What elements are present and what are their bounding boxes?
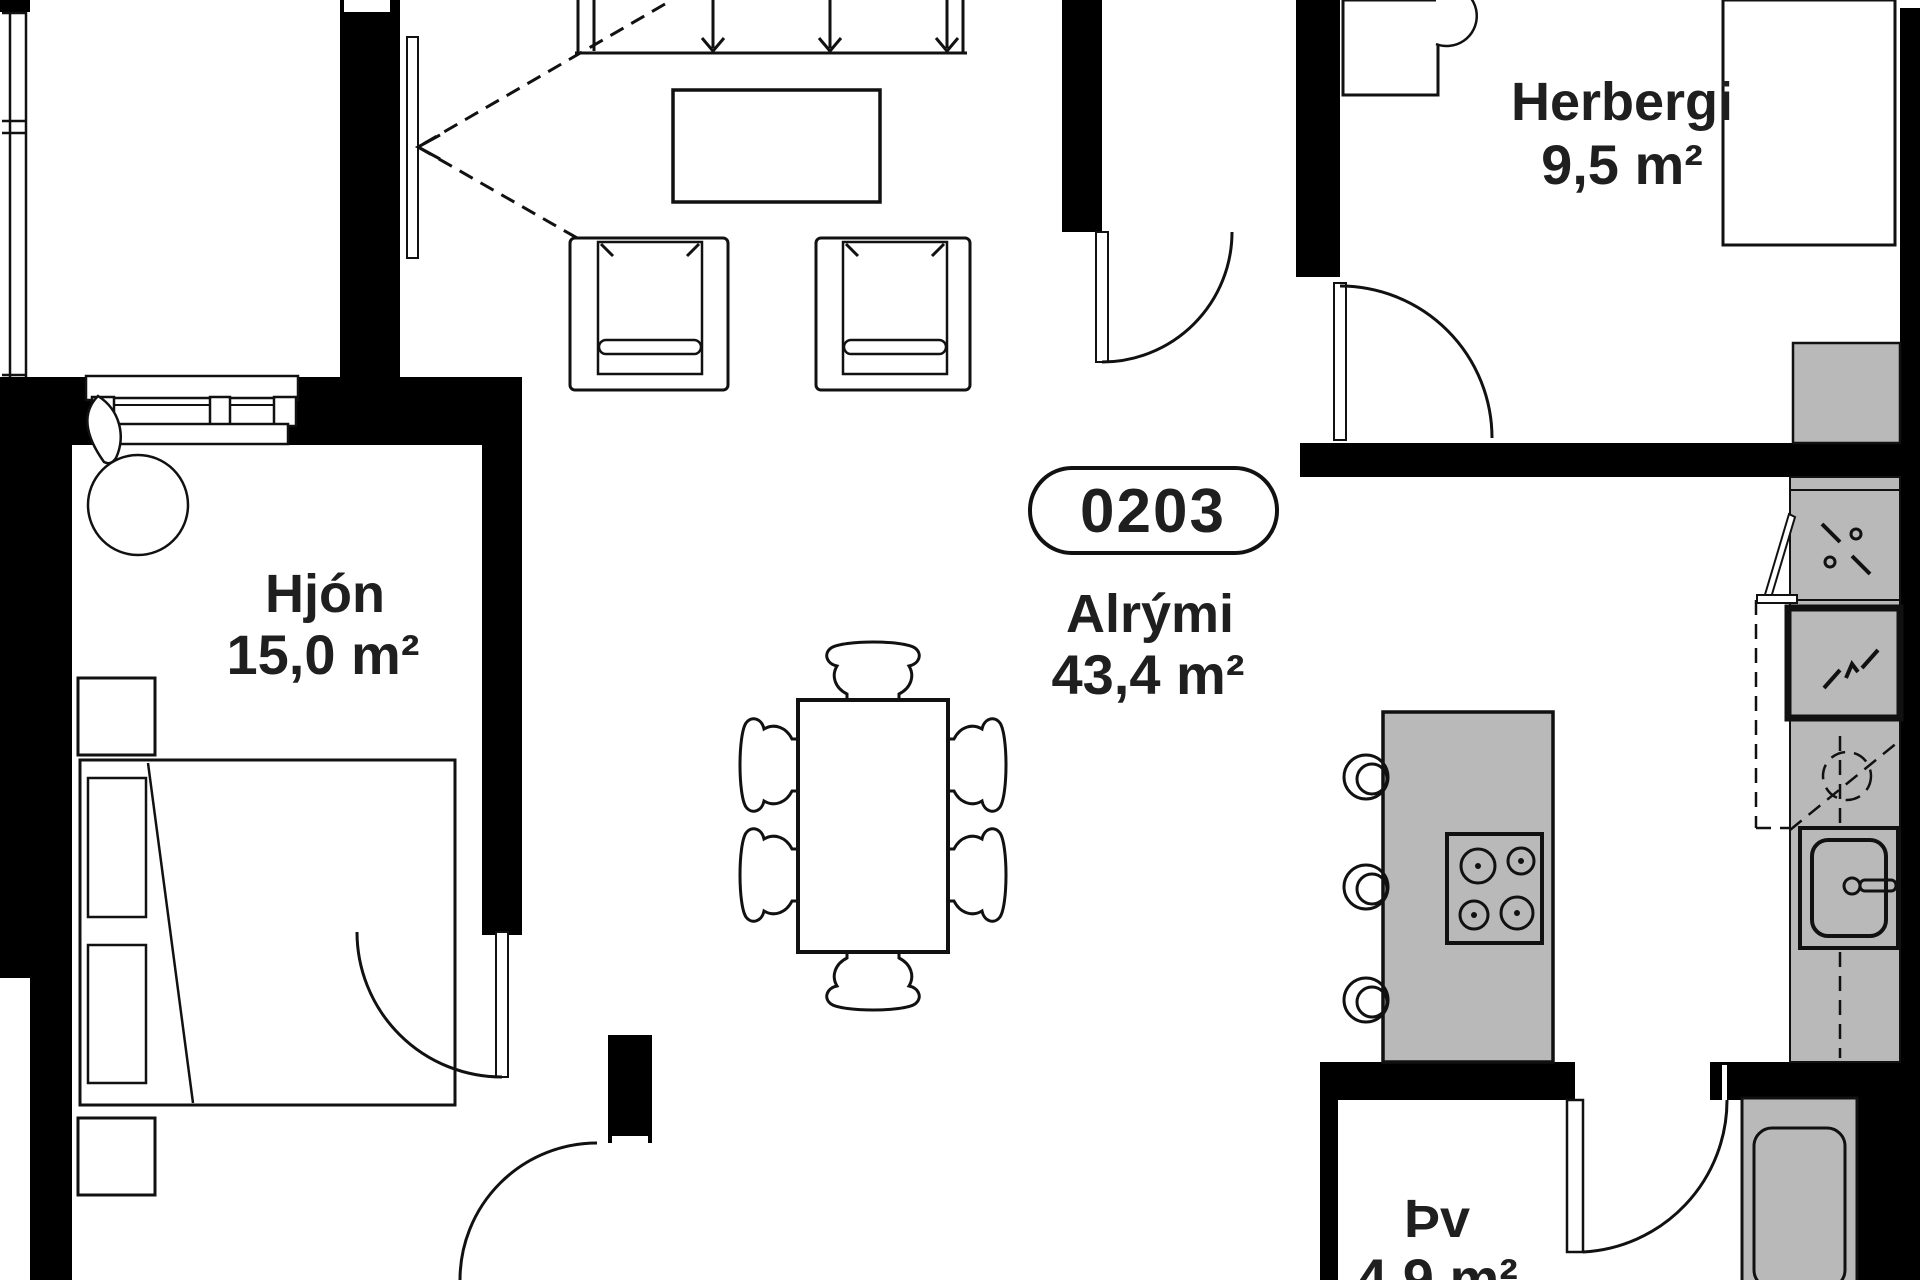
room-area-thv: 4,9 m² — [1356, 1247, 1518, 1280]
room-label-thv: Þv — [1404, 1189, 1470, 1249]
herbergi-desk — [1343, 0, 1438, 95]
room-area-hjon: 15,0 m² — [227, 623, 420, 686]
corridor-door-arc — [1102, 232, 1232, 362]
dining-set — [740, 642, 1006, 1010]
oven-icon — [1788, 608, 1900, 718]
island-counter — [1383, 712, 1553, 1062]
herbergi-door-arc — [1340, 286, 1492, 438]
unit-badge: 0203 — [1030, 468, 1277, 553]
dining-chair — [740, 829, 800, 922]
dining-chair — [946, 829, 1006, 922]
washer-icon — [1742, 1098, 1857, 1280]
wall-hjon-right — [482, 377, 522, 935]
thv-door-leaf — [1567, 1100, 1583, 1252]
dining-chair — [946, 719, 1006, 812]
badge-number: 0203 — [1080, 477, 1226, 546]
thv-door-arc — [1583, 1100, 1727, 1252]
herbergi-room — [1334, 0, 1900, 443]
dining-chair — [827, 950, 920, 1010]
armchair-right — [816, 238, 970, 390]
wall-herbergi-left — [1296, 0, 1340, 277]
herbergi-bed — [1723, 0, 1895, 245]
sofa — [575, 0, 967, 53]
cabinet-door-base — [1757, 595, 1797, 603]
wall-herbergi-bottom — [1300, 443, 1900, 477]
room-label-herbergi: Herbergi — [1511, 72, 1733, 132]
wall-thv-left — [1320, 1100, 1338, 1280]
door-swing-dashed-upper — [418, 4, 665, 147]
wall-stub-jamb — [612, 1136, 648, 1143]
floor-plan: 0203 Hjón 15,0 m² Alrými 43,4 m² Herberg… — [0, 0, 1920, 1280]
wall-hjon-left-lower — [30, 978, 72, 1280]
coffee-table — [673, 90, 880, 202]
room-label-hjon: Hjón — [265, 564, 385, 624]
left-window — [2, 12, 26, 377]
wall-thv-jamb — [1722, 1065, 1727, 1100]
thv-room — [1567, 1098, 1857, 1280]
wall-stub-bottom — [608, 1035, 652, 1143]
room-label-alrymi: Alrými — [1066, 584, 1234, 644]
hall-door-arc — [460, 1143, 597, 1280]
room-area-alrymi: 43,4 m² — [1052, 643, 1245, 706]
corridor-door-leaf — [1096, 232, 1108, 362]
wall-kitchen-band-left — [1320, 1062, 1575, 1100]
pillow — [88, 778, 146, 917]
wall-right-exterior — [1900, 8, 1920, 1098]
door-swing-arrow — [418, 135, 440, 159]
pillow — [88, 945, 146, 1083]
plant-pot — [88, 455, 188, 555]
dining-chair — [827, 642, 920, 702]
armchair-left — [570, 238, 728, 390]
wall-bottomright-block — [1857, 1098, 1920, 1280]
hjon-room — [78, 396, 508, 1195]
herbergi-door-leaf — [1334, 283, 1346, 440]
wall-corner-stub — [0, 0, 30, 12]
kitchen-wall-run — [1756, 477, 1900, 1062]
wall-hjon-left-upper — [0, 377, 72, 978]
nightstand — [78, 678, 155, 755]
room-area-herbergi: 9,5 m² — [1541, 133, 1703, 196]
hjon-door-leaf — [496, 932, 508, 1077]
sink-icon — [1800, 828, 1898, 948]
nightstand — [78, 1118, 155, 1195]
floor-plan-canvas: 0203 Hjón 15,0 m² Alrými 43,4 m² Herberg… — [0, 0, 1920, 1280]
corridor-door — [1096, 232, 1232, 362]
desk-chair — [1436, 0, 1477, 46]
wall-kitchen-band-right — [1710, 1062, 1920, 1100]
wall-living-corridor — [1062, 0, 1102, 232]
wall-notch — [344, 0, 390, 12]
dining-chair — [740, 719, 800, 812]
kitchen-island — [1344, 712, 1553, 1062]
herbergi-wardrobe — [1793, 343, 1900, 443]
dining-table — [798, 700, 948, 952]
counter-run — [1790, 477, 1900, 1062]
